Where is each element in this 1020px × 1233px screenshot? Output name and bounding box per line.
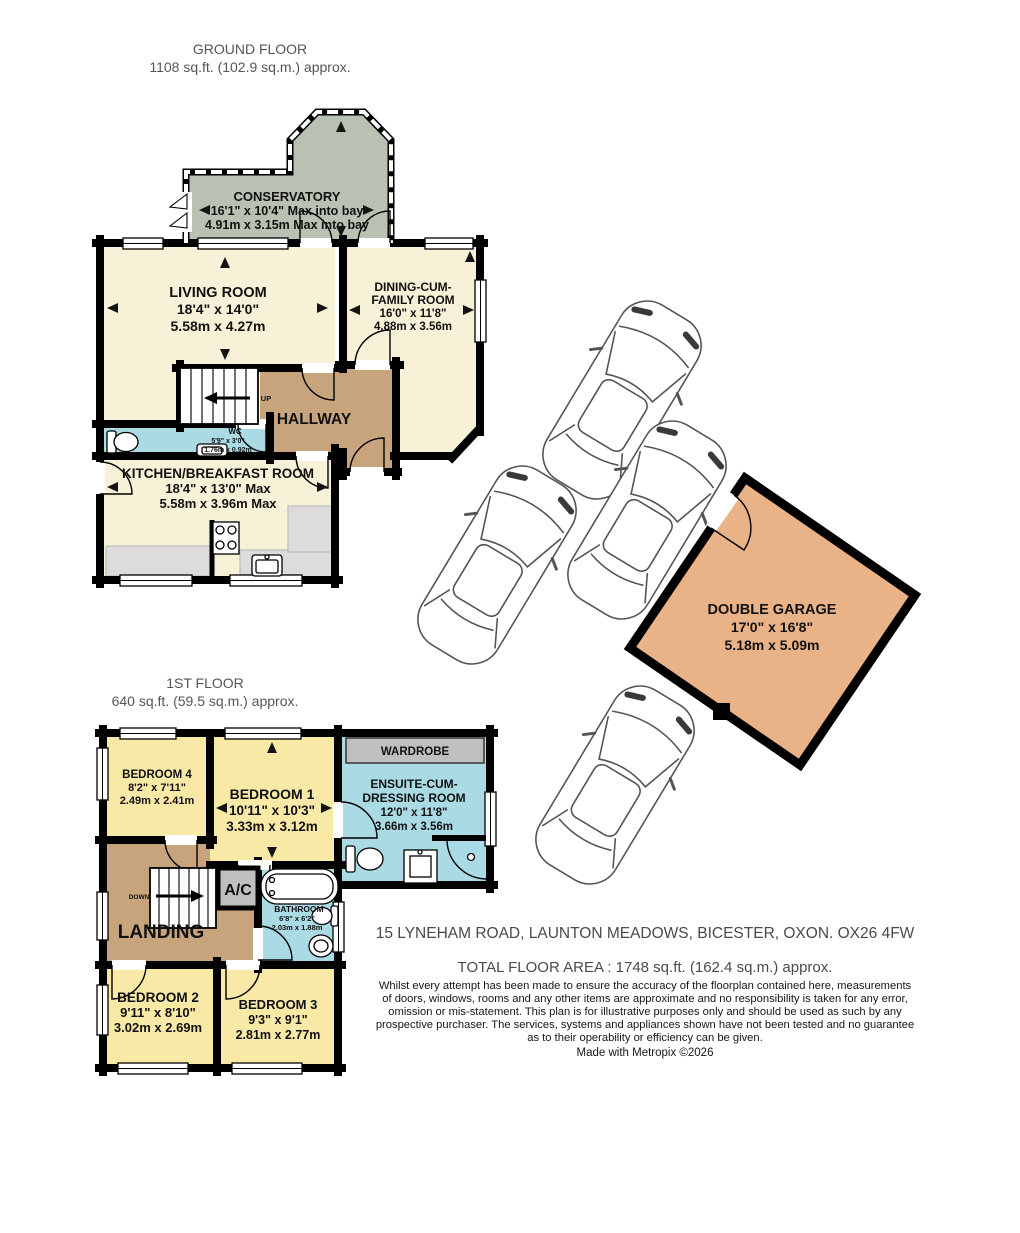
bedroom3-metric: 2.81m x 2.77m (236, 1028, 321, 1042)
ac-label: A/C (224, 882, 252, 899)
disclaimer-line: as to their operability or efficiency ca… (527, 1032, 762, 1044)
bedroom3-name: BEDROOM 3 (239, 997, 318, 1012)
conservatory-name: CONSERVATORY (234, 189, 341, 204)
disclaimer-line: omission or mis-statement. This plan is … (388, 1006, 902, 1018)
kitchen-name: KITCHEN/BREAKFAST ROOM (122, 466, 314, 481)
bathroom-imperial: 6'8" x 6'2" (279, 914, 315, 923)
first-floor-area: 640 sq.ft. (59.5 sq.m.) approx. (112, 693, 299, 709)
garage-metric: 5.18m x 5.09m (725, 637, 820, 653)
wardrobe-label: WARDROBE (381, 746, 450, 758)
garage-imperial: 17'0" x 16'8" (731, 619, 813, 635)
conservatory-imperial: 16'1" x 10'4" Max into bay (211, 204, 364, 218)
wc-metric: 1.76m x 0.92m (204, 447, 251, 454)
bedroom2-metric: 3.02m x 2.69m (114, 1020, 202, 1035)
ensuite-imperial: 12'0" x 11'8" (381, 807, 448, 819)
stairs-up: UP (180, 368, 271, 424)
conservatory-metric: 4.91m x 3.15m Max into bay (205, 218, 369, 232)
bedroom2-imperial: 9'11" x 8'10" (120, 1005, 196, 1020)
wc-name: WC (228, 427, 242, 436)
bedroom4-name: BEDROOM 4 (122, 769, 192, 781)
dining-name1: DINING-CUM- (374, 280, 451, 294)
bedroom4-imperial: 8'2" x 7'11" (128, 782, 186, 794)
dining-name2: FAMILY ROOM (371, 293, 454, 307)
floorplan-canvas: GROUND FLOOR 1108 sq.ft. (102.9 sq.m.) a… (0, 0, 1020, 1233)
first-floor-title: 1ST FLOOR (166, 675, 244, 691)
floorplan-page: GROUND FLOOR 1108 sq.ft. (102.9 sq.m.) a… (0, 0, 1020, 1233)
bedroom4-metric: 2.49m x 2.41m (120, 795, 195, 807)
disclaimer-line: of doors, windows, rooms and any other i… (382, 993, 907, 1005)
garage-name: DOUBLE GARAGE (708, 602, 837, 618)
bathroom-metric: 2.03m x 1.88m (272, 923, 323, 932)
ensuite-name1: ENSUITE-CUM- (370, 777, 457, 791)
bedroom1-name: BEDROOM 1 (230, 786, 315, 802)
disclaimer-line: Whilst every attempt has been made to en… (379, 980, 912, 992)
property-address: 15 LYNEHAM ROAD, LAUNTON MEADOWS, BICEST… (376, 925, 915, 942)
stairs-up-label: UP (261, 394, 271, 403)
living-name: LIVING ROOM (169, 285, 266, 301)
stairs-down-label: DOWN (129, 894, 150, 901)
hallway-name: HALLWAY (277, 411, 352, 428)
kitchen-metric: 5.58m x 3.96m Max (159, 496, 277, 511)
landing-label: LANDING (118, 922, 205, 943)
bedroom1-imperial: 10'11" x 10'3" (229, 803, 315, 818)
ensuite-name2: DRESSING ROOM (362, 791, 465, 805)
garage-pier (713, 703, 730, 720)
ensuite-metric: 3.66m x 3.56m (375, 821, 453, 833)
bedroom2-name: BEDROOM 2 (117, 990, 199, 1005)
bedroom1-metric: 3.33m x 3.12m (226, 819, 318, 834)
wc-imperial: 5'9" x 3'0" (211, 438, 244, 445)
living-metric: 5.58m x 4.27m (171, 318, 266, 334)
ground-floor-title: GROUND FLOOR (193, 41, 307, 57)
footer-text: 15 LYNEHAM ROAD, LAUNTON MEADOWS, BICEST… (376, 925, 915, 1059)
dining-metric: 4.88m x 3.56m (374, 321, 452, 333)
bathroom-name: BATHROOM (274, 904, 323, 914)
car-icon (517, 670, 713, 899)
metropix-credit: Made with Metropix ©2026 (577, 1047, 714, 1059)
kitchen-imperial: 18'4" x 13'0" Max (165, 481, 271, 496)
bedroom3-imperial: 9'3" x 9'1" (248, 1013, 308, 1027)
disclaimer-line: prospective purchaser. The services, sys… (376, 1019, 914, 1031)
living-imperial: 18'4" x 14'0" (177, 301, 259, 317)
ac-cupboard: A/C (218, 868, 258, 908)
total-floor-area: TOTAL FLOOR AREA : 1748 sq.ft. (162.4 sq… (458, 959, 833, 976)
dining-imperial: 16'0" x 11'8" (380, 308, 447, 320)
ground-floor-plan: GROUND FLOOR 1108 sq.ft. (102.9 sq.m.) a… (95, 41, 486, 586)
ground-floor-area: 1108 sq.ft. (102.9 sq.m.) approx. (149, 59, 350, 75)
